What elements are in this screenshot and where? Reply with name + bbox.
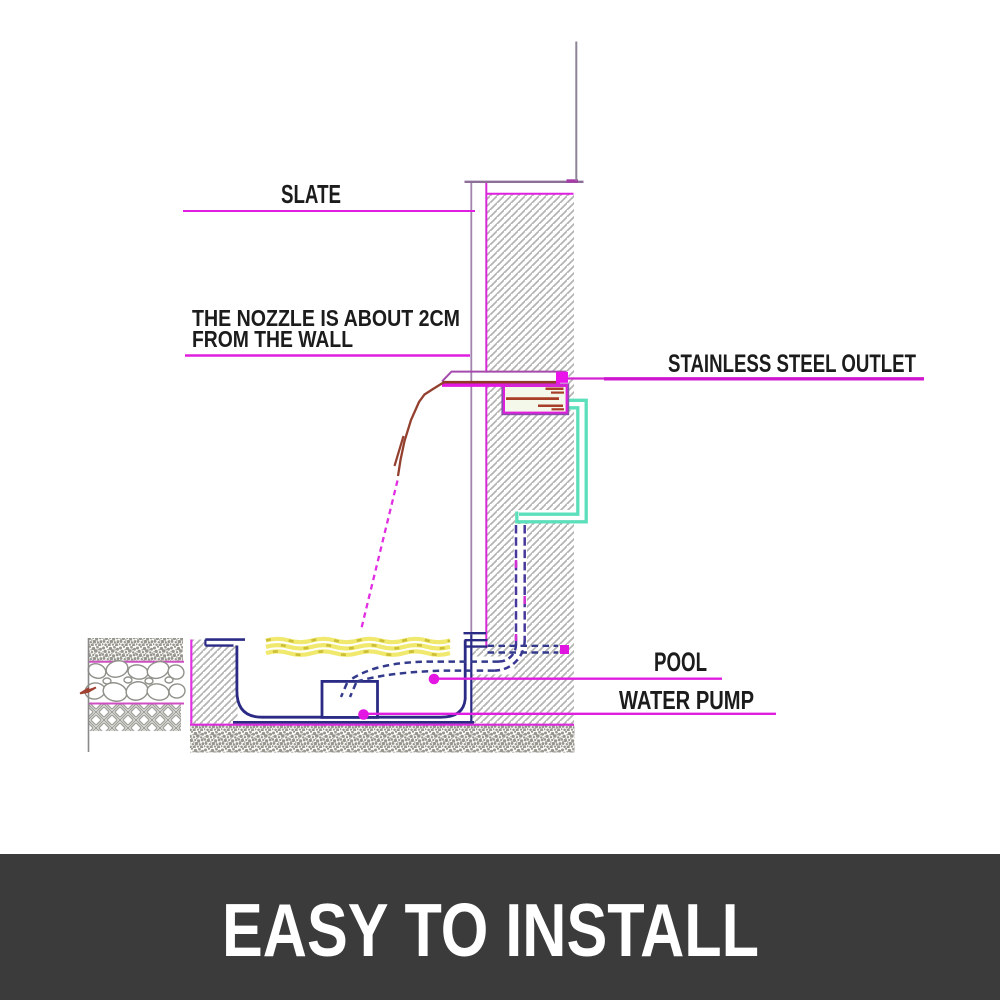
svg-text:EASY TO INSTALL: EASY TO INSTALL bbox=[222, 888, 759, 972]
svg-text:POOL: POOL bbox=[654, 647, 707, 677]
svg-text:WATER PUMP: WATER PUMP bbox=[619, 685, 754, 715]
svg-text:SLATE: SLATE bbox=[281, 179, 341, 209]
svg-text:FROM THE WALL: FROM THE WALL bbox=[192, 326, 353, 352]
svg-text:STAINLESS STEEL OUTLET: STAINLESS STEEL OUTLET bbox=[668, 350, 916, 378]
